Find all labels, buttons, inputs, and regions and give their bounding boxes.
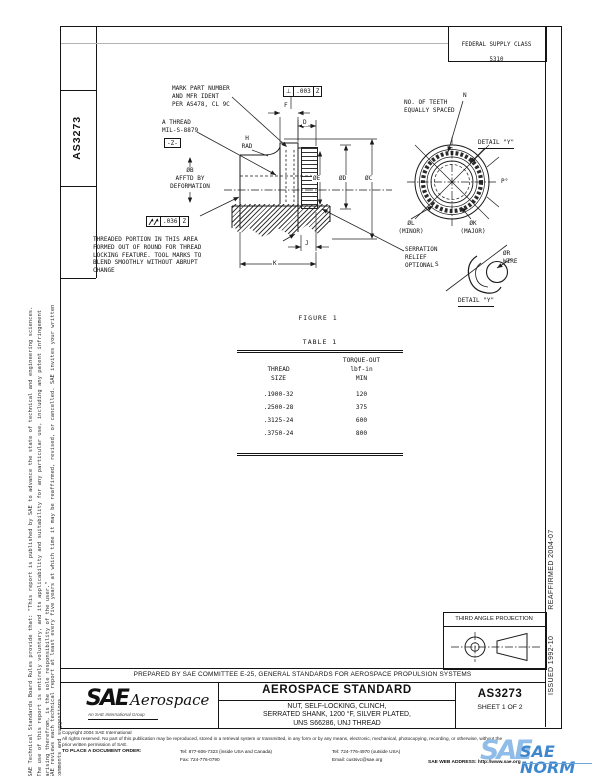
threaded-portion-note: THREADED PORTION IN THIS AREA FORMED OUT… (93, 236, 201, 275)
order-label: TO PLACE A DOCUMENT ORDER: (62, 749, 141, 754)
document-title: NUT, SELF-LOCKING, CLINCH, SERRATED SHAN… (219, 703, 455, 730)
perp-datum: Z (314, 86, 323, 97)
teeth-count-note: NO. OF TEETH EQUALLY SPACED (404, 99, 455, 115)
sae-norm-logo: SAE SAE NORM (480, 737, 600, 773)
dim-p: P° (500, 178, 509, 185)
dim-n: N (462, 92, 468, 99)
email-line: Email: custsvc@sae.org (332, 757, 382, 762)
titleblock-top-line (60, 668, 545, 669)
thread-size: .3125-24 (237, 417, 320, 430)
perp-tolerance: .003 (294, 86, 313, 97)
table-row: .3750-24 800 (237, 430, 403, 443)
datum-z-label: -Z- (167, 140, 178, 147)
torque-value: 600 (320, 417, 403, 430)
serration-relief-note: SERRATION RELIEF OPTIONAL (405, 246, 438, 269)
tel-inside: Tel: 877-606-7323 (inside USA and Canada… (180, 749, 272, 754)
table-caption: TABLE 1 (237, 338, 403, 346)
thread-size: .1900-32 (237, 391, 320, 404)
sae-logo-tagline: An SAE International Group (88, 712, 145, 717)
figure-caption: FIGURE 1 (258, 314, 378, 322)
torque-value: 375 (320, 404, 403, 417)
datum-z-flag: -Z- (164, 138, 181, 148)
prepared-by-note: PREPARED BY SAE COMMITTEE E-25, GENERAL … (60, 671, 545, 678)
dim-dia-r-wire: ØR WIRE (503, 250, 517, 266)
copyright-line: Copyright 2004 SAE International (62, 730, 132, 735)
sae-norm-wordmark: SAE NORM (520, 744, 600, 776)
dia-b-note: ØB AFFTD BY DEFORMATION (157, 167, 223, 190)
total-runout-icon (146, 216, 161, 227)
torque-table: THREAD SIZE TORQUE-OUT lbf-in MIN .1900-… (237, 350, 403, 456)
standard-sheet: SAE Technical Standards Board Rules prov… (0, 0, 600, 776)
dim-dia-e: ØE (312, 175, 321, 182)
table-row: .3125-24 600 (237, 417, 403, 430)
standard-type-heading: AEROSPACE STANDARD (219, 684, 455, 696)
mark-note: MARK PART NUMBER AND MFR IDENT PER AS478… (172, 85, 230, 108)
runout-datum: Z (180, 216, 189, 227)
h-rad-label: H RAD (238, 135, 256, 151)
thread-size: .2500-28 (237, 404, 320, 417)
dim-k: K (272, 260, 278, 267)
dim-dia-d: ØD (338, 175, 347, 182)
doc-number: AS3273 (455, 688, 545, 700)
sheet-number: SHEET 1 OF 2 (455, 704, 545, 711)
table-row: .1900-32 120 (237, 391, 403, 404)
table-header-torque: TORQUE-OUT lbf-in MIN (320, 357, 403, 384)
dim-s: S (434, 261, 440, 268)
tel-outside: Tel: 724-776-4970 (outside USA) (332, 749, 400, 754)
web-address: SAE WEB ADDRESS: http://www.sae.org (428, 760, 521, 765)
dim-f: F (283, 102, 289, 109)
standard-type-underline (219, 700, 455, 701)
runout-tolerance: .036 (161, 216, 180, 227)
table-header-row: THREAD SIZE TORQUE-OUT lbf-in MIN (237, 357, 403, 384)
rights-text: All rights reserved. No part of this pub… (62, 736, 504, 748)
projection-title: THIRD ANGLE PROJECTION (444, 616, 544, 624)
thread-size: .3750-24 (237, 430, 320, 443)
titleblock-divider (60, 682, 545, 683)
dim-dia-k-major: ØK (MAJOR) (450, 220, 496, 236)
fax-line: Fax: 724-776-0790 (180, 757, 220, 762)
sae-norm-rule (522, 763, 592, 764)
torque-value: 800 (320, 430, 403, 443)
dim-j: J (304, 240, 310, 247)
thread-note: A THREAD MIL-S-8879 (162, 119, 198, 135)
sae-logo-rule (88, 719, 158, 720)
projection-title-divider (443, 626, 545, 627)
torque-value: 120 (320, 391, 403, 404)
dim-dia-c: ØC (364, 175, 373, 182)
runout-fcf: .036 Z (146, 216, 189, 227)
dim-d: D (302, 119, 308, 126)
detail-y-callout: DETAIL "Y" (478, 139, 514, 149)
sae-aerospace-logo: SAE Aerospace An SAE International Group (86, 686, 216, 724)
perpendicularity-fcf: ⊥ .003 Z (283, 86, 322, 97)
table-row: .2500-28 375 (237, 404, 403, 417)
table-header-thread: THREAD SIZE (237, 366, 320, 384)
detail-y-label: DETAIL "Y" (458, 297, 494, 307)
sae-logo-mark: SAE (86, 686, 128, 711)
sae-logo-aerospace: Aerospace (130, 691, 209, 709)
perpendicularity-icon: ⊥ (283, 86, 294, 97)
dim-dia-l-minor: ØL (MINOR) (388, 220, 434, 236)
